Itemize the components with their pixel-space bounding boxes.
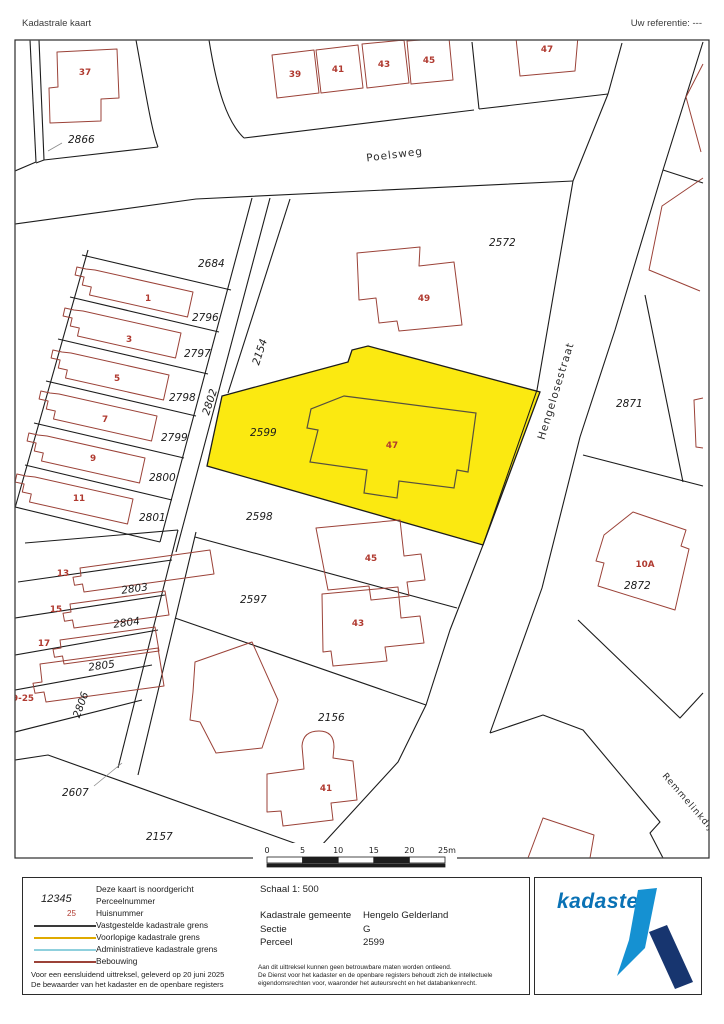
- scale-tick-0: 0: [264, 846, 269, 855]
- legend-label-huisnummer: Huisnummer: [96, 908, 143, 918]
- parcel-label-2607: 2607: [62, 787, 89, 799]
- scale-tick-5: 5: [300, 846, 305, 855]
- parcel-label-2866: 2866: [68, 134, 95, 146]
- disclaimer-line-1: Aan dit uittreksel kunnen geen betrouwba…: [258, 964, 452, 971]
- parcel-label-2800: 2800: [149, 472, 176, 484]
- footnote-bewaarder: De bewaarder van het kadaster en de open…: [31, 980, 224, 989]
- disclaimer-line-3: eigendomsrechten voor, waaronder het aut…: [258, 980, 477, 987]
- perceel-value: 2599: [363, 937, 384, 948]
- parcel-label-2572: 2572: [489, 237, 516, 249]
- house-label-39: 39: [289, 70, 301, 80]
- disclaimer-line-2: De Dienst voor het kadaster en de openba…: [258, 972, 492, 979]
- house-label-13: 13: [57, 569, 69, 579]
- parcel-label-2801: 2801: [139, 512, 166, 524]
- house-label-15: 15: [50, 605, 62, 615]
- north-note: Deze kaart is noordgericht: [96, 884, 194, 894]
- house-label-41: 41: [320, 784, 332, 794]
- house-label-45: 45: [365, 554, 377, 564]
- kadaster-logo-icon: [593, 882, 699, 992]
- legend-label-vastgestelde-grens: Vastgestelde kadastrale grens: [96, 920, 208, 930]
- house-label-3: 3: [126, 335, 132, 345]
- legend-label-voorlopige-grens: Voorlopige kadastrale grens: [96, 932, 200, 942]
- house-label-5: 5: [114, 374, 120, 384]
- house-label-43-top: 43: [378, 60, 390, 70]
- legend-label-administratieve-grens: Administratieve kadastrale grens: [96, 944, 218, 954]
- parcel-number-sample: 12345: [41, 893, 72, 905]
- scale-bar: 0 5 10 15 20 25m: [253, 843, 457, 871]
- swatch-vastgestelde-grens: [34, 925, 96, 927]
- kadaster-extract-page: Kadastrale kaart Uw referentie: ---: [0, 0, 724, 1024]
- scale-bar-segments: [267, 857, 445, 867]
- scale-tick-20: 20: [404, 846, 414, 855]
- house-label-11: 11: [73, 494, 85, 504]
- swatch-voorlopige-grens: [34, 937, 96, 939]
- gemeente-value: Hengelo Gelderland: [363, 910, 448, 921]
- house-label-47-highlighted: 47: [386, 441, 398, 451]
- scale-tick-25m: 25m: [438, 846, 456, 855]
- house-label-17: 17: [38, 639, 50, 649]
- legend-info-panel: Deze kaart is noordgericht 12345 Perceel…: [22, 877, 530, 995]
- parcel-label-2598: 2598: [246, 511, 273, 523]
- house-label-1: 1: [145, 294, 151, 304]
- scale-tick-10: 10: [333, 846, 343, 855]
- scale-tick-15: 15: [369, 846, 379, 855]
- sectie-label: Sectie: [260, 924, 287, 935]
- house-label-47-top: 47: [541, 45, 553, 55]
- parcel-label-2871: 2871: [616, 398, 643, 410]
- scale-label: Schaal 1: 500: [260, 884, 319, 895]
- house-label-37: 37: [79, 68, 91, 78]
- footnote-eensluidend: Voor een eensluidend uittreksel, gelever…: [31, 970, 224, 979]
- cadastral-map: 2866 2684 2796 2797 2798 2799 2800 2801 …: [0, 0, 724, 1024]
- parcel-label-2157: 2157: [146, 831, 173, 843]
- parcel-label-2599: 2599: [250, 427, 277, 439]
- house-label-10a: 10A: [635, 560, 654, 570]
- parcel-label-2796: 2796: [192, 312, 219, 324]
- parcel-label-2597: 2597: [240, 594, 267, 606]
- house-label-19-25: 19-25: [6, 694, 34, 704]
- house-number-sample: 25: [67, 909, 76, 918]
- house-label-41-top: 41: [332, 65, 344, 75]
- swatch-administratieve-grens: [34, 949, 96, 951]
- swatch-bebouwing: [34, 961, 96, 963]
- house-label-45-top: 45: [423, 56, 435, 66]
- parcel-label-2799: 2799: [161, 432, 188, 444]
- house-label-7: 7: [102, 415, 108, 425]
- perceel-label: Perceel: [260, 937, 293, 948]
- parcel-label-2872: 2872: [624, 580, 651, 592]
- house-label-43: 43: [352, 619, 364, 629]
- kadaster-logo-panel: kadaster: [534, 877, 702, 995]
- gemeente-label: Kadastrale gemeente: [260, 910, 351, 921]
- legend-label-bebouwing: Bebouwing: [96, 956, 137, 966]
- house-label-9: 9: [90, 454, 96, 464]
- house-label-49: 49: [418, 294, 430, 304]
- sectie-value: G: [363, 924, 370, 935]
- parcel-label-2797: 2797: [184, 348, 211, 360]
- legend-label-perceelnummer: Perceelnummer: [96, 896, 155, 906]
- parcel-label-2684: 2684: [198, 258, 225, 270]
- parcel-label-2798: 2798: [169, 392, 196, 404]
- parcel-label-2156: 2156: [318, 712, 345, 724]
